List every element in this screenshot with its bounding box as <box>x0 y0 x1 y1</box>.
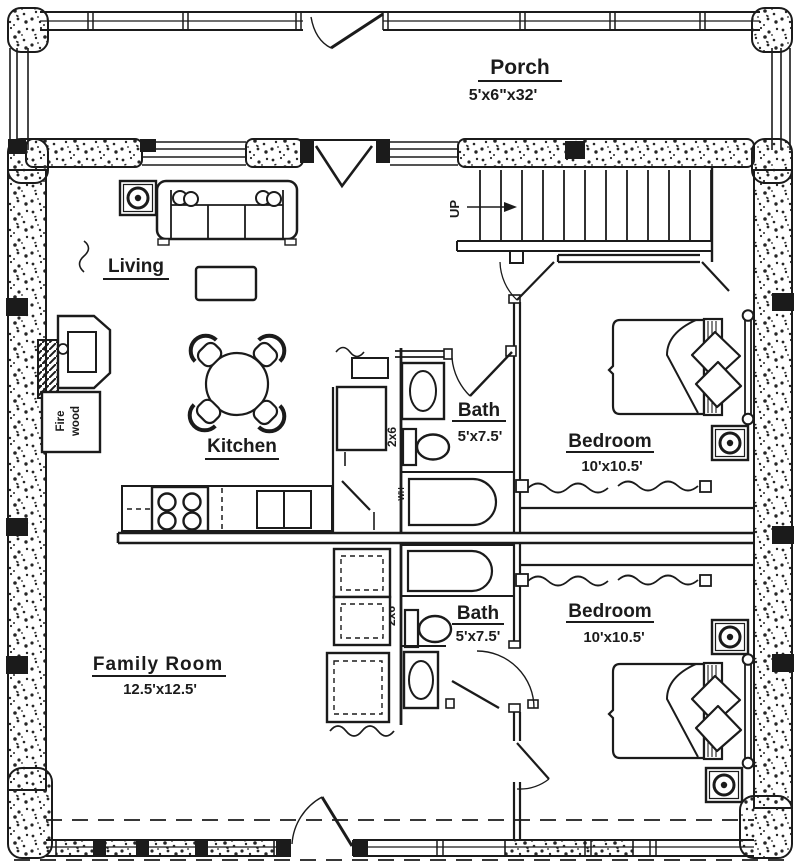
bedroom-2: Bedroom 10'x10.5' <box>516 574 753 802</box>
kitchen-label: Kitchen <box>207 436 277 457</box>
sofa <box>157 181 297 245</box>
bath2-tub <box>408 551 492 591</box>
bedroom1-door-swing <box>517 262 554 300</box>
porch-walls <box>8 8 792 150</box>
porch-label: Porch <box>490 56 550 79</box>
living-label: Living <box>108 256 164 277</box>
bath1-door-swing <box>470 352 512 396</box>
center-divider-wall <box>118 533 754 543</box>
bedroom1-dims: 10'x10.5' <box>581 458 642 475</box>
firewood-box: Fire wood <box>42 392 100 452</box>
bath1-label: Bath <box>458 400 500 421</box>
wall-break-squiggle <box>80 241 89 272</box>
bath2-label: Bath <box>457 603 499 624</box>
speaker-icon <box>712 620 748 654</box>
bedroom1-label: Bedroom <box>568 431 651 452</box>
stairs: UP <box>447 170 713 263</box>
speaker-icon <box>120 181 156 215</box>
speaker-icon <box>706 768 742 802</box>
bath-1: WH Bath 5'x7.5' <box>397 346 516 525</box>
porch-dims: 5'x6"x32' <box>469 87 538 104</box>
floor-plan-page: Living Fire wood Kitchen 2x6 UP <box>0 0 800 863</box>
kitchen-counter <box>122 486 332 531</box>
speaker-icon <box>712 426 748 460</box>
bath1-dims: 5'x7.5' <box>458 428 503 445</box>
bath1-toilet <box>403 429 449 465</box>
stairs-up-label: UP <box>447 200 462 218</box>
up-arrow-icon <box>504 202 517 212</box>
stud-note-top: 2x6 <box>385 427 399 447</box>
bed <box>609 310 753 424</box>
bath2-door-swing <box>452 681 499 708</box>
family-room-dims: 12.5'x12.5' <box>123 681 197 698</box>
bath2-toilet <box>405 610 451 647</box>
bedroom2-label: Bedroom <box>568 601 651 622</box>
firewood-label-line1: Fire <box>55 410 67 431</box>
wall-break-squiggle <box>330 726 394 736</box>
firewood-label-line2: wood <box>70 406 82 437</box>
bedroom2-dims: 10'x10.5' <box>583 629 644 646</box>
kitchen-sink <box>257 491 284 528</box>
floor-plan: Living Fire wood Kitchen 2x6 UP <box>0 0 800 863</box>
bottom-wall <box>14 797 786 860</box>
family-room: Family Room 12.5'x12.5' <box>92 654 226 698</box>
bed <box>609 654 753 768</box>
water-heater-label: WH <box>397 487 406 501</box>
bedroom-1: Bedroom 10'x10.5' <box>500 262 753 493</box>
porch: Porch 5'x6"x32' <box>469 56 562 104</box>
front-double-door <box>300 137 390 186</box>
laundry-closets <box>327 549 394 736</box>
insulation-wave <box>516 574 711 586</box>
bath1-tub <box>409 479 496 525</box>
family-room-label: Family Room <box>93 654 223 675</box>
insulation-wave <box>516 480 711 493</box>
bath2-dims: 5'x7.5' <box>456 628 501 645</box>
pantry-closet: 2x6 <box>336 348 399 531</box>
closet-door-swing <box>342 481 370 510</box>
wood-stove <box>38 316 110 398</box>
kitchen: Kitchen <box>122 329 332 531</box>
coffee-table <box>196 267 256 300</box>
bedroom2-door-swing <box>517 743 549 779</box>
porch-door-swing <box>311 14 383 48</box>
